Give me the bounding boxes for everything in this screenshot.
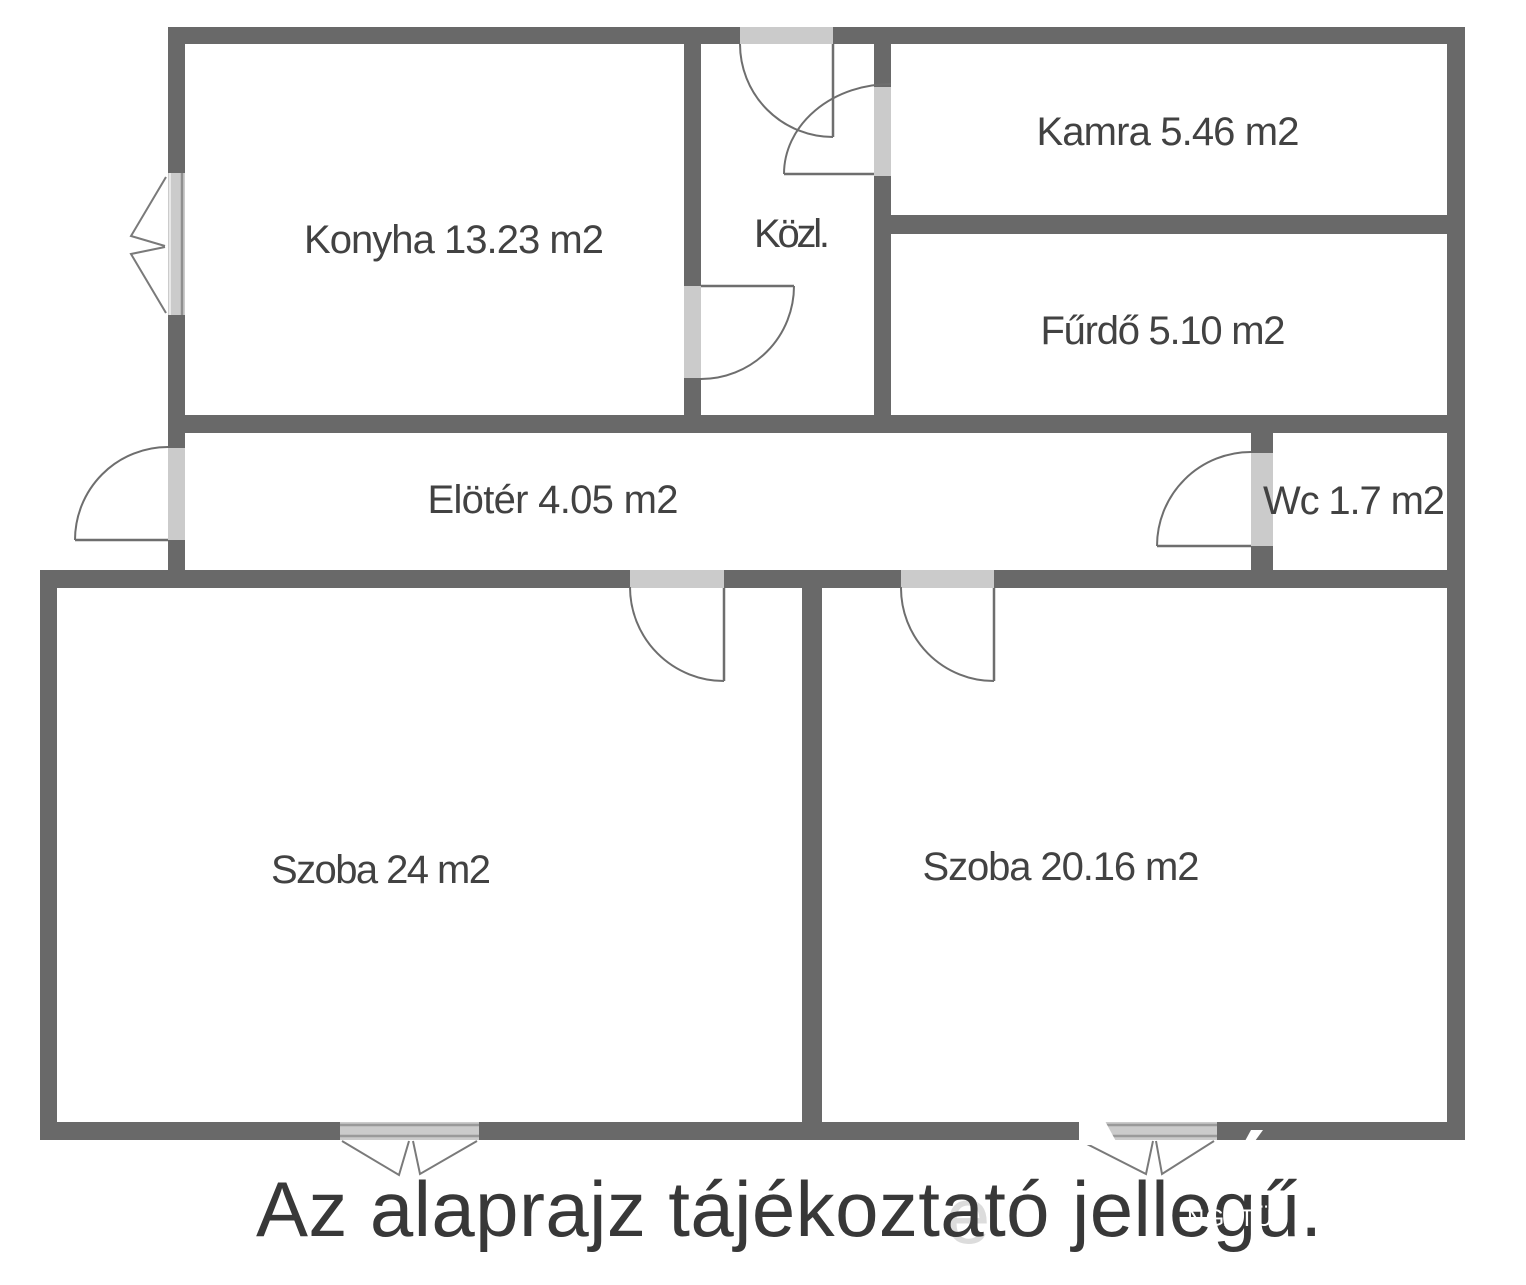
- svg-text:Szoba 20.16 m2: Szoba 20.16 m2: [923, 845, 1200, 889]
- svg-text:Elötér 4.05 m2: Elötér 4.05 m2: [428, 478, 679, 522]
- svg-text:Fűrdő 5.10 m2: Fűrdő 5.10 m2: [1041, 309, 1286, 353]
- svg-text:Szoba 24 m2: Szoba 24 m2: [271, 848, 491, 892]
- svg-text:N G A T Ü L: N G A T Ü L: [1187, 1205, 1287, 1232]
- svg-text:Az alaprajz tájékoztató jelleg: Az alaprajz tájékoztató jellegű.: [256, 1165, 1322, 1253]
- svg-text:Közl.: Közl.: [754, 212, 830, 256]
- svg-text:Wc 1.7 m2: Wc 1.7 m2: [1263, 479, 1445, 523]
- svg-text:Kamra 5.46 m2: Kamra 5.46 m2: [1037, 110, 1300, 154]
- svg-text:Konyha 13.23 m2: Konyha 13.23 m2: [304, 218, 604, 262]
